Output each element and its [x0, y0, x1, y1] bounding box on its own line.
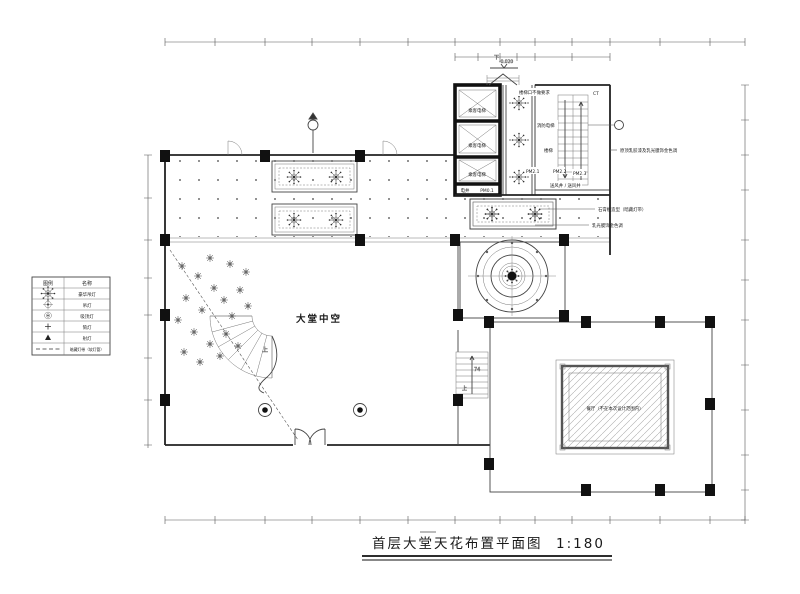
- top-entrance: 下 -0.020: [487, 55, 519, 85]
- room-label-fire-elevator: 消防电梯: [537, 122, 555, 129]
- section-marker-icon: [308, 113, 318, 153]
- label-electrical-shaft: 电井: [461, 187, 470, 194]
- spotlight-icon: [45, 335, 51, 341]
- drawing-title: 首层大堂天花布置平面图: [372, 536, 543, 552]
- room-label-passenger-elevator-2: 乘客电梯: [468, 142, 486, 149]
- downlight-icon: [45, 324, 51, 330]
- tag-pm22: PM2.2: [553, 169, 567, 175]
- floor-plan-drawing: 乘客电梯 乘客电梯 乘客电梯 电井 PM0.1 下 -0.020 楼梯口不做要求: [0, 0, 800, 594]
- mark-up-stair: 上: [462, 385, 467, 392]
- elevator-block: 乘客电梯 乘客电梯 乘客电梯 电井 PM0.1: [455, 85, 500, 195]
- dimension-lines: [144, 38, 749, 524]
- pendant-light-icon: [43, 300, 53, 310]
- door-swing-icon: [228, 141, 397, 155]
- room-label-passenger-elevator-1: 乘客电梯: [468, 107, 486, 114]
- note-stair: 楼梯口不做要求: [519, 89, 550, 96]
- ceiling-light-icon: [45, 312, 52, 319]
- label-ct: CT: [593, 91, 599, 97]
- legend-header-name: 名称: [82, 280, 92, 287]
- annotation-1: 原顶乳胶漆及乳光膜饰金色调: [620, 147, 678, 154]
- medallion-room: [460, 236, 565, 318]
- legend-row-name: 吸顶灯: [80, 313, 94, 320]
- title-scale: 1:180: [556, 536, 605, 552]
- restaurant-area: 餐厅（不在本次设计范围内）: [490, 322, 712, 492]
- legend-row-name: 射灯: [83, 335, 92, 342]
- legend-row-name: 暗藏灯带（软灯管）: [70, 347, 104, 352]
- mark-stair-count: 74: [474, 367, 480, 373]
- room-label-restaurant: 餐厅（不在本次设计范围内）: [586, 405, 643, 412]
- tag-pm01: PM0.1: [480, 188, 494, 194]
- annotation-2: 石膏板造型（暗藏灯带）: [598, 206, 646, 213]
- chandelier-icon: [41, 286, 56, 301]
- leader-line: [170, 250, 298, 440]
- wing-ceiling: [165, 113, 610, 445]
- legend-row-name: 吊灯: [83, 302, 92, 309]
- drawing-sheet: 乘客电梯 乘客电梯 乘客电梯 电井 PM0.1 下 -0.020 楼梯口不做要求: [0, 0, 800, 594]
- downlight-grid-wing: [168, 158, 458, 237]
- elevator-lobby-corridor: [503, 85, 535, 195]
- plant-decoration: [174, 254, 252, 366]
- entrance-door-icon: [295, 429, 325, 445]
- restaurant-ceiling-frame: 餐厅（不在本次设计范围内）: [556, 360, 674, 454]
- legend-row-name: 豪华吊灯: [78, 291, 96, 298]
- annotation-3: 乳光膜饰金色调: [592, 222, 623, 229]
- stair-to-restaurant: 上 74: [456, 352, 488, 398]
- title-block: 首层大堂天花布置平面图 1:180: [362, 532, 612, 560]
- room-label-atrium: 大堂中空: [296, 313, 342, 325]
- legend-row-name: 筒灯: [83, 324, 92, 331]
- room-label-passenger-elevator-3: 乘客电梯: [468, 171, 486, 178]
- mark-up-spiral: 上: [262, 346, 268, 354]
- label-air-shaft: 送风井 / 送风井: [550, 182, 581, 189]
- tag-pm21: PM2.1: [526, 169, 540, 175]
- ceiling-medallion: [468, 236, 556, 316]
- mark-level: -0.020: [499, 59, 513, 65]
- tag-pm23: PM2.3: [573, 171, 587, 177]
- legend-table: 图例 名称 豪华吊灯 吊灯 吸顶灯 筒灯 射灯 暗藏灯带（软灯管）: [32, 277, 110, 355]
- lobby-area: 大堂中空 上: [165, 240, 490, 445]
- legend-header-symbol: 图例: [43, 280, 53, 287]
- detail-bubble-icon: [615, 121, 624, 130]
- room-label-stair: 楼梯: [544, 147, 553, 154]
